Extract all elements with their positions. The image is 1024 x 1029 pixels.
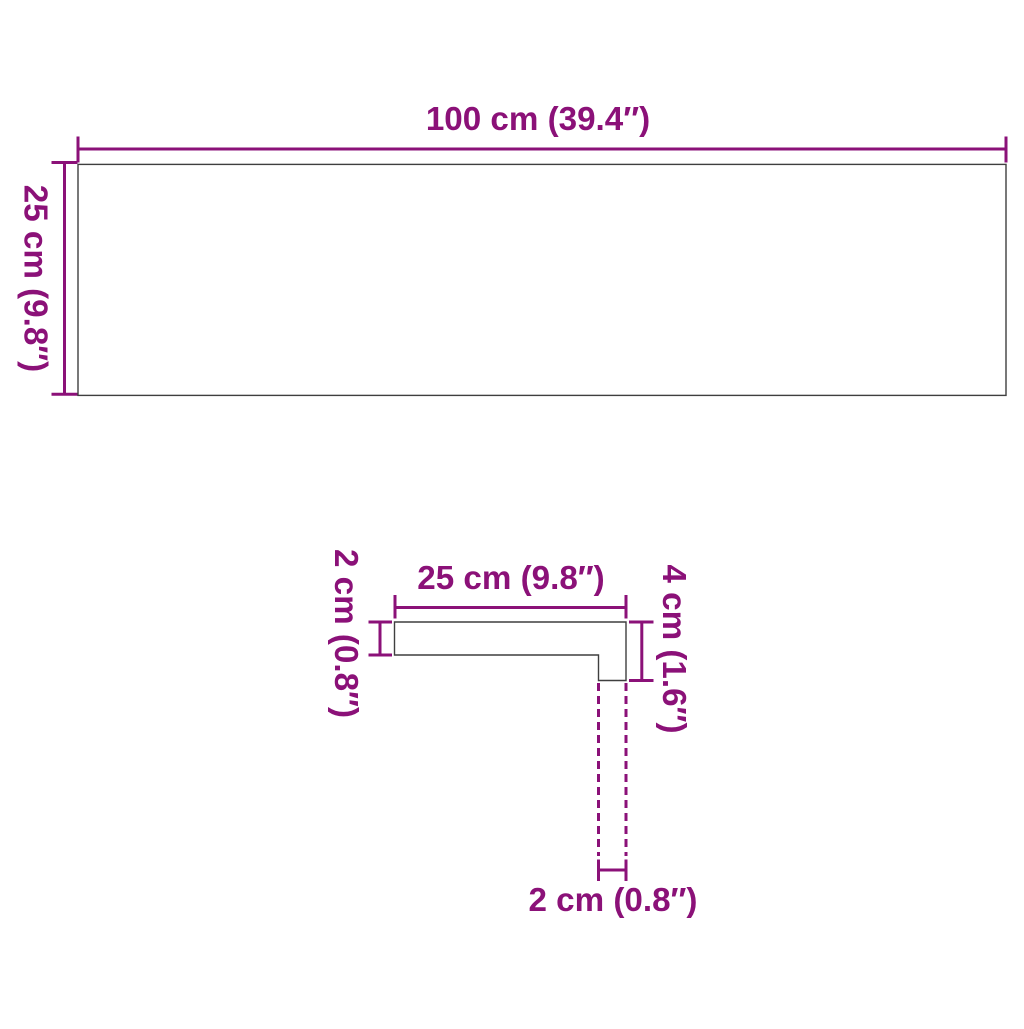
svg-text:2 cm (0.8″): 2 cm (0.8″): [528, 882, 697, 919]
svg-text:25 cm (9.8″): 25 cm (9.8″): [17, 185, 54, 372]
svg-text:4 cm (1.6″): 4 cm (1.6″): [655, 564, 692, 733]
svg-text:25 cm (9.8″): 25 cm (9.8″): [417, 560, 604, 597]
svg-text:2 cm (0.8″): 2 cm (0.8″): [327, 549, 364, 718]
svg-text:100 cm (39.4″): 100 cm (39.4″): [426, 101, 650, 138]
